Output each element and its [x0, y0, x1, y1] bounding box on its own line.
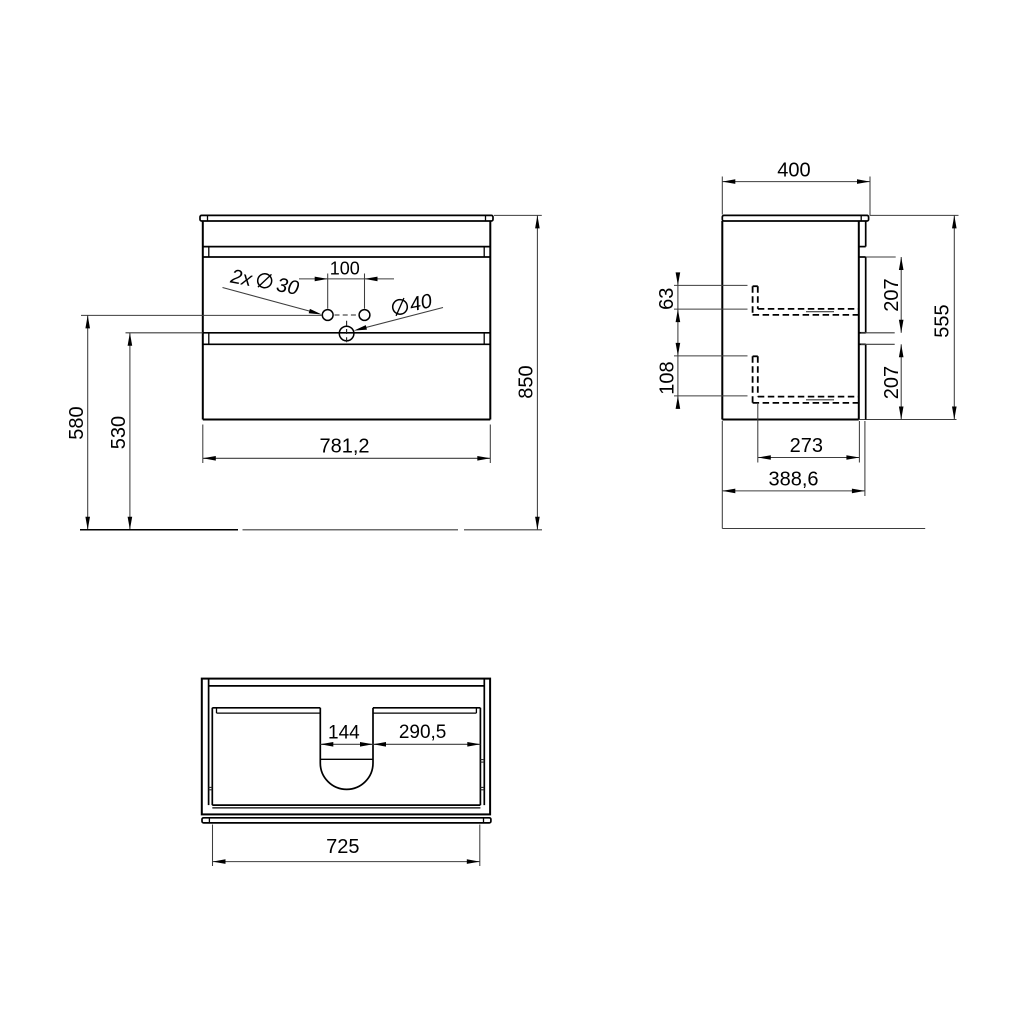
svg-text:555: 555 [932, 304, 954, 337]
svg-text:2x: 2x [228, 266, 255, 292]
svg-text:290,5: 290,5 [399, 722, 447, 743]
svg-text:144: 144 [328, 723, 360, 744]
svg-text:100: 100 [330, 258, 360, 278]
svg-text:781,2: 781,2 [319, 436, 369, 458]
svg-text:388,6: 388,6 [768, 468, 818, 490]
svg-text:108: 108 [656, 361, 678, 394]
svg-text:207: 207 [881, 278, 903, 311]
svg-text:580: 580 [66, 406, 88, 439]
svg-text:400: 400 [777, 160, 810, 182]
svg-text:30: 30 [275, 274, 301, 300]
svg-text:530: 530 [108, 416, 130, 449]
svg-text:207: 207 [881, 366, 903, 399]
svg-text:850: 850 [516, 365, 538, 398]
svg-text:63: 63 [656, 288, 678, 310]
svg-text:273: 273 [790, 435, 823, 457]
svg-text:725: 725 [326, 836, 359, 858]
svg-text:40: 40 [408, 290, 434, 316]
